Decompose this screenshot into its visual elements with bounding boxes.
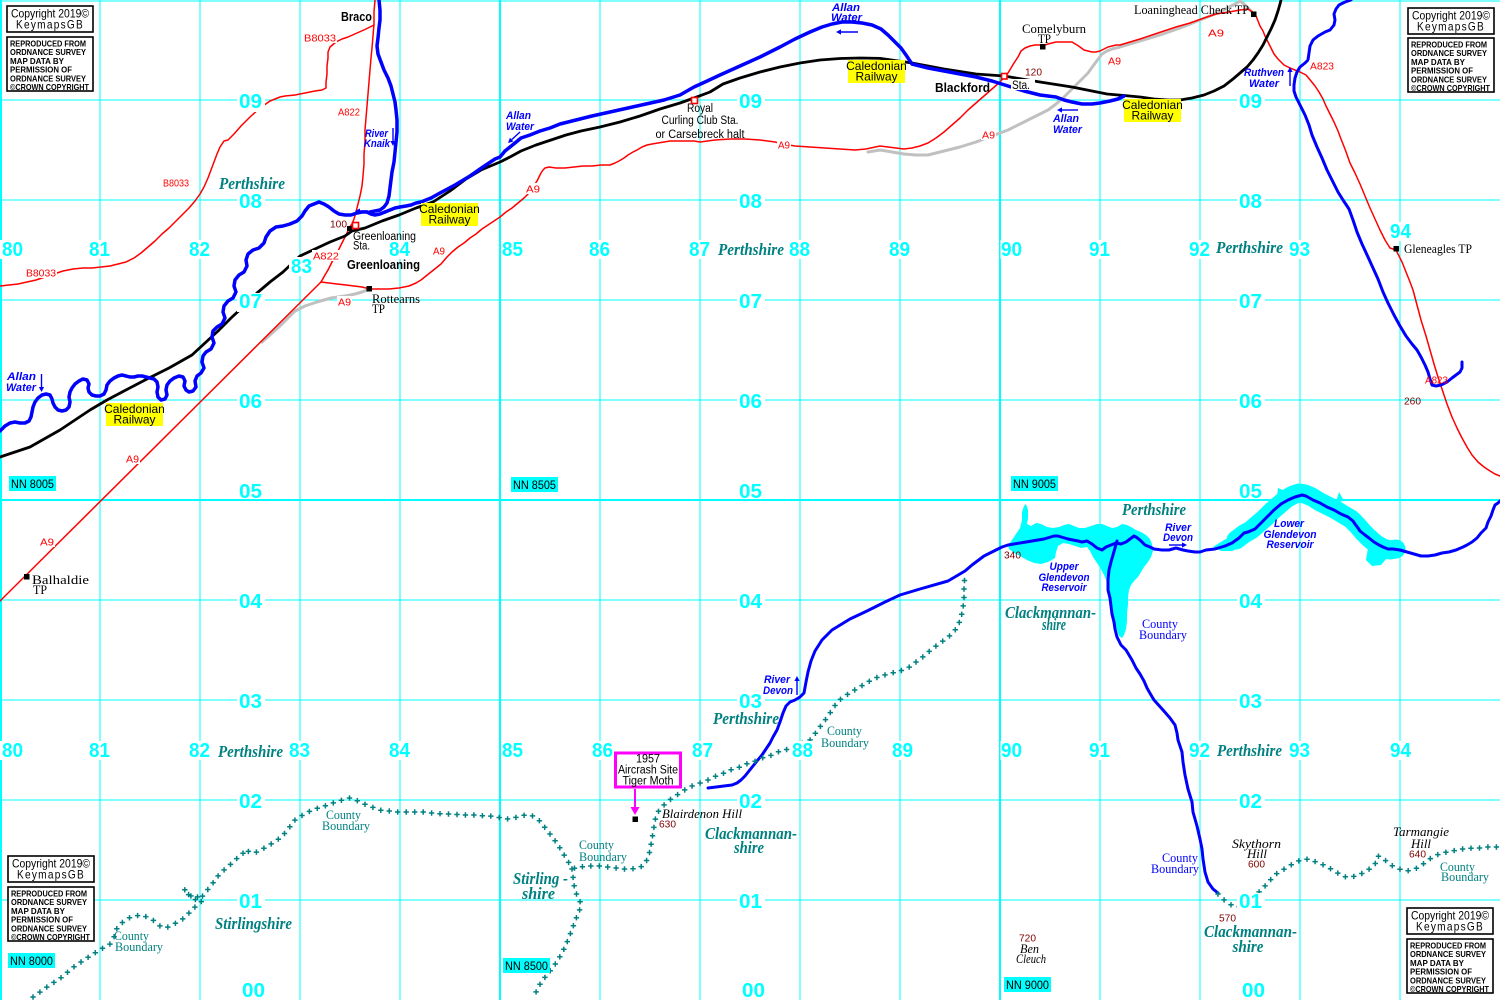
svg-text:Boundary: Boundary: [1139, 627, 1187, 642]
svg-text:81: 81: [89, 239, 110, 261]
svg-text:Perthshire: Perthshire: [218, 174, 285, 193]
svg-text:80: 80: [2, 239, 23, 261]
svg-text:Reservoir: Reservoir: [1042, 582, 1088, 594]
svg-text:86: 86: [589, 239, 610, 261]
svg-text:Devon: Devon: [1163, 532, 1193, 544]
svg-text:Blackford: Blackford: [935, 80, 990, 95]
svg-text:NN 8005: NN 8005: [11, 477, 54, 491]
svg-text:KeymapsGB: KeymapsGB: [1417, 20, 1485, 34]
svg-text:NN 9005: NN 9005: [1013, 477, 1056, 491]
svg-text:85: 85: [502, 740, 523, 762]
svg-text:100: 100: [330, 219, 347, 231]
svg-text:93: 93: [1289, 239, 1310, 261]
svg-text:00: 00: [742, 980, 765, 1000]
svg-text:90: 90: [1001, 239, 1022, 261]
svg-text:84: 84: [389, 740, 411, 762]
svg-text:Gleneagles TP: Gleneagles TP: [1404, 241, 1472, 256]
svg-text:82: 82: [189, 239, 210, 261]
svg-text:A9: A9: [526, 184, 540, 196]
svg-text:©CROWN COPYRIGHT: ©CROWN COPYRIGHT: [1411, 83, 1491, 93]
svg-text:83: 83: [291, 256, 312, 278]
svg-text:08: 08: [1239, 191, 1262, 213]
svg-text:87: 87: [692, 740, 713, 762]
svg-text:Boundary: Boundary: [115, 939, 163, 954]
svg-text:90: 90: [1001, 740, 1022, 762]
svg-text:00: 00: [242, 980, 265, 1000]
svg-text:82: 82: [189, 740, 210, 762]
svg-text:00: 00: [1242, 980, 1265, 1000]
svg-text:shire: shire: [1232, 937, 1264, 956]
svg-text:A9: A9: [40, 537, 54, 549]
svg-text:Railway: Railway: [855, 70, 897, 84]
svg-text:Boundary: Boundary: [821, 735, 869, 750]
svg-text:NN 8500: NN 8500: [505, 959, 548, 973]
svg-text:Perthshire: Perthshire: [1216, 741, 1282, 760]
svg-text:A9: A9: [982, 130, 995, 142]
svg-text:KeymapsGB: KeymapsGB: [1416, 920, 1484, 934]
svg-text:89: 89: [889, 239, 910, 261]
svg-text:Perthshire: Perthshire: [1121, 500, 1186, 519]
svg-text:03: 03: [239, 691, 262, 713]
svg-text:340: 340: [1004, 550, 1021, 562]
svg-text:NN 8505: NN 8505: [513, 478, 556, 492]
svg-text:Reservoir: Reservoir: [1267, 539, 1315, 551]
svg-text:Perthshire: Perthshire: [217, 742, 283, 761]
svg-text:09: 09: [239, 91, 262, 113]
svg-text:Curling Club Sta.: Curling Club Sta.: [662, 115, 739, 127]
svg-text:91: 91: [1089, 239, 1110, 261]
svg-text:03: 03: [1239, 691, 1262, 713]
svg-text:Perthshire: Perthshire: [712, 709, 779, 728]
svg-text:06: 06: [1239, 391, 1262, 413]
svg-text:91: 91: [1089, 740, 1110, 762]
svg-text:A9: A9: [1108, 56, 1121, 68]
svg-text:260: 260: [1404, 396, 1421, 408]
svg-text:Loaninghead Check TP: Loaninghead Check TP: [1134, 2, 1249, 17]
svg-text:Water: Water: [506, 121, 535, 133]
svg-text:83: 83: [289, 740, 310, 762]
svg-text:88: 88: [789, 239, 810, 261]
svg-text:A9: A9: [126, 454, 139, 466]
svg-text:TP: TP: [372, 301, 385, 316]
svg-text:Boundary: Boundary: [579, 849, 627, 864]
svg-text:NN 9000: NN 9000: [1006, 978, 1049, 992]
svg-text:Tiger Moth: Tiger Moth: [623, 776, 674, 788]
svg-text:A822: A822: [338, 107, 360, 119]
svg-text:TP: TP: [1038, 31, 1051, 46]
svg-text:Sta.: Sta.: [1012, 80, 1030, 92]
svg-text:A9: A9: [1208, 28, 1224, 40]
svg-text:86: 86: [592, 740, 613, 762]
svg-text:80: 80: [2, 740, 23, 762]
svg-text:©CROWN COPYRIGHT: ©CROWN COPYRIGHT: [10, 82, 90, 92]
svg-text:Water: Water: [1249, 78, 1280, 90]
svg-text:Railway: Railway: [1131, 109, 1173, 123]
svg-text:Perthshire: Perthshire: [717, 240, 784, 259]
svg-text:Stirlingshire: Stirlingshire: [215, 914, 292, 933]
svg-text:04: 04: [739, 591, 763, 613]
svg-text:A823: A823: [1310, 61, 1334, 73]
svg-text:NN 8000: NN 8000: [10, 954, 53, 968]
svg-text:A822: A822: [313, 251, 339, 263]
svg-text:Blairdenon Hill: Blairdenon Hill: [662, 806, 742, 821]
svg-text:Boundary: Boundary: [322, 818, 370, 833]
svg-text:TP: TP: [33, 582, 47, 597]
svg-text:05: 05: [1239, 481, 1262, 503]
svg-text:Railway: Railway: [428, 213, 470, 227]
svg-text:Railway: Railway: [113, 413, 155, 427]
svg-text:Boundary: Boundary: [1441, 869, 1489, 884]
svg-text:Water: Water: [1053, 124, 1083, 136]
svg-text:Hill: Hill: [1246, 846, 1267, 861]
svg-text:©CROWN COPYRIGHT: ©CROWN COPYRIGHT: [1410, 984, 1490, 994]
svg-text:A9: A9: [433, 246, 445, 258]
svg-text:Hill: Hill: [1410, 836, 1431, 851]
svg-text:©CROWN COPYRIGHT: ©CROWN COPYRIGHT: [11, 932, 91, 942]
svg-text:94: 94: [1390, 221, 1412, 243]
svg-text:01: 01: [1239, 891, 1262, 913]
svg-text:B8033: B8033: [304, 33, 336, 45]
svg-text:Water: Water: [831, 12, 863, 24]
svg-text:89: 89: [892, 740, 913, 762]
svg-text:88: 88: [792, 740, 813, 762]
svg-text:Perthshire: Perthshire: [1215, 238, 1283, 257]
svg-text:05: 05: [739, 481, 762, 503]
svg-text:B8033: B8033: [26, 268, 56, 280]
svg-text:02: 02: [1239, 791, 1262, 813]
svg-text:81: 81: [89, 740, 110, 762]
svg-text:02: 02: [239, 791, 262, 813]
svg-text:shire: shire: [733, 838, 764, 857]
svg-text:07: 07: [239, 291, 262, 313]
svg-text:01: 01: [739, 891, 762, 913]
svg-text:Sta.: Sta.: [353, 241, 370, 253]
svg-text:A9: A9: [778, 140, 790, 152]
svg-text:A9: A9: [338, 297, 351, 309]
svg-text:05: 05: [239, 481, 262, 503]
svg-text:92: 92: [1189, 740, 1210, 762]
svg-text:01: 01: [239, 891, 262, 913]
svg-text:09: 09: [1239, 91, 1262, 113]
svg-text:B8033: B8033: [163, 178, 189, 190]
svg-text:Greenloaning: Greenloaning: [347, 257, 420, 272]
svg-text:A823: A823: [1425, 375, 1448, 387]
svg-text:shire: shire: [1041, 615, 1066, 634]
svg-text:Knaik: Knaik: [364, 138, 391, 150]
svg-text:KeymapsGB: KeymapsGB: [17, 868, 85, 882]
svg-text:Cleuch: Cleuch: [1016, 951, 1046, 966]
svg-text:Water: Water: [6, 382, 37, 394]
svg-text:or Carsebreck halt: or Carsebreck halt: [656, 129, 746, 141]
svg-text:08: 08: [239, 191, 262, 213]
svg-text:Comelyburn: Comelyburn: [1022, 21, 1086, 36]
svg-text:93: 93: [1289, 740, 1310, 762]
svg-text:06: 06: [739, 391, 762, 413]
svg-text:87: 87: [689, 239, 710, 261]
svg-text:07: 07: [739, 291, 762, 313]
svg-text:09: 09: [739, 91, 762, 113]
svg-text:07: 07: [1239, 291, 1262, 313]
svg-text:Devon: Devon: [763, 685, 793, 697]
svg-text:02: 02: [739, 791, 762, 813]
svg-text:04: 04: [1239, 591, 1263, 613]
svg-text:94: 94: [1390, 740, 1412, 762]
svg-text:08: 08: [739, 191, 762, 213]
svg-text:Royal: Royal: [687, 103, 713, 115]
svg-text:Braco: Braco: [341, 9, 372, 24]
svg-text:04: 04: [239, 591, 263, 613]
svg-text:KeymapsGB: KeymapsGB: [16, 18, 84, 32]
svg-text:92: 92: [1189, 239, 1210, 261]
svg-text:Boundary: Boundary: [1151, 861, 1199, 876]
svg-text:85: 85: [502, 239, 523, 261]
svg-text:120: 120: [1025, 67, 1042, 79]
svg-text:06: 06: [239, 391, 262, 413]
svg-text:shire: shire: [521, 884, 555, 903]
